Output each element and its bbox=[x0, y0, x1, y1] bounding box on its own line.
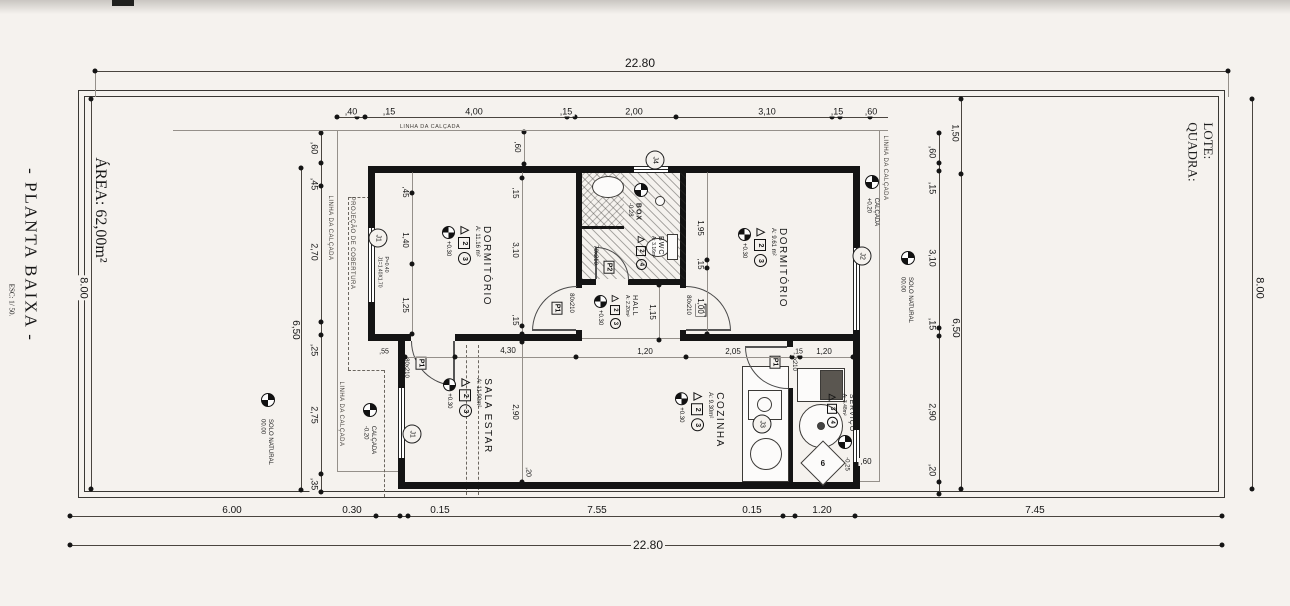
finish-symbols: △ 2 3 bbox=[459, 378, 472, 417]
room-cozinha: COZINHA A: 9.30m² △ 2 3 +0.30 bbox=[675, 392, 725, 448]
floor-plan-sheet: - PLANTA BAIXA - ESC: 1/ 50. ÁREA: 62,00… bbox=[0, 0, 1290, 606]
level-value: +0.30 bbox=[446, 241, 452, 256]
level-box: -0.28 BOX bbox=[626, 203, 641, 221]
wall bbox=[576, 279, 596, 285]
dim-dot bbox=[674, 115, 679, 120]
window-j1-sala bbox=[398, 388, 405, 458]
room-area: A: 9.61 m² bbox=[770, 228, 776, 256]
dim-dot bbox=[319, 131, 324, 136]
dim-dot bbox=[705, 258, 710, 263]
note-linha-calcada-left: LINHA DA CALÇADA bbox=[327, 195, 333, 260]
door-tag-label: P2 bbox=[606, 263, 613, 272]
dim-dot bbox=[937, 480, 942, 485]
wall bbox=[576, 330, 582, 341]
dim-dot bbox=[363, 115, 368, 120]
dim-dot bbox=[1220, 514, 1225, 519]
wall bbox=[853, 173, 860, 248]
level-marker-row: +0.30 bbox=[738, 228, 751, 258]
dim-line bbox=[707, 170, 708, 334]
level-solo-right: 00.00 SOLO NATURAL bbox=[899, 277, 913, 323]
dim-dot bbox=[299, 166, 304, 171]
plan-scale: ESC: 1/ 50. bbox=[8, 282, 15, 318]
dim: ,35 bbox=[310, 476, 319, 493]
circle-symbol: 3 bbox=[458, 252, 471, 265]
roof-projection-line bbox=[348, 370, 384, 371]
triangle-symbol: △ bbox=[828, 394, 837, 401]
room-name: DORMITÓRIO bbox=[481, 226, 492, 306]
scan-shadow bbox=[0, 0, 1290, 14]
dim-line-right-chain bbox=[939, 133, 940, 494]
dim: ,60 bbox=[310, 140, 319, 157]
level-value: +0.30 bbox=[598, 310, 604, 325]
dim-line bbox=[405, 357, 853, 358]
window-tag-j3: J3 bbox=[753, 415, 772, 434]
dim: 0.15 bbox=[428, 506, 451, 516]
door-tag-label: P1 bbox=[554, 304, 561, 313]
dim: 0.30 bbox=[340, 506, 363, 516]
room-area: A: 9.30m² bbox=[707, 392, 713, 418]
dim-line-bottom-chain bbox=[70, 516, 1222, 517]
dim: 1,20 bbox=[635, 348, 655, 356]
dim-recuo: ,60 bbox=[513, 139, 521, 154]
room-name: SALA ESTAR bbox=[482, 378, 493, 453]
dim-dot bbox=[410, 332, 415, 337]
dim-line-right-outer bbox=[961, 99, 962, 489]
level-name: SOLO NATURAL bbox=[267, 419, 274, 465]
square-symbol: 2 bbox=[637, 246, 647, 256]
window-tag-j1: J1 bbox=[369, 229, 388, 248]
wall bbox=[680, 330, 686, 341]
washbasin bbox=[592, 176, 624, 198]
dim-line-left-total bbox=[91, 99, 92, 489]
level-name: CALÇADA bbox=[370, 426, 377, 454]
window-tag-label: J1 bbox=[375, 234, 382, 241]
level-icon-solo-left bbox=[261, 393, 275, 407]
dim-dot bbox=[574, 355, 579, 360]
wall bbox=[398, 482, 860, 489]
dim: 2,90 bbox=[511, 402, 519, 422]
hall-opening-line bbox=[580, 338, 684, 339]
dim: 3,10 bbox=[511, 240, 519, 260]
dim-dot bbox=[937, 492, 942, 497]
quadra-lote-block: QUADRA: LOTE: bbox=[1185, 122, 1215, 181]
dim-dot bbox=[410, 262, 415, 267]
dim-top-total: 22.80 bbox=[623, 57, 657, 69]
level-icon bbox=[442, 226, 455, 239]
dim: 7.45 bbox=[1023, 506, 1046, 516]
room-servico: SERVIÇO A: 3.48m² △ 3 4 bbox=[827, 394, 855, 432]
dim-line-top-chain bbox=[337, 117, 888, 118]
level-marker-row: +0.30 bbox=[594, 295, 607, 325]
dim-dot bbox=[851, 355, 856, 360]
dim: ,15 bbox=[696, 256, 704, 271]
door-tag-label: P1 bbox=[772, 358, 779, 367]
level-icon-calcada-right bbox=[865, 175, 879, 189]
ext-line bbox=[95, 71, 96, 97]
level-value: +0.30 bbox=[679, 407, 685, 422]
window-tag-label: J4 bbox=[652, 156, 659, 163]
dim-dot bbox=[705, 168, 710, 173]
dim: ,15 bbox=[511, 312, 519, 327]
triangle-symbol: △ bbox=[459, 226, 470, 234]
door-tag-bwc: P2 bbox=[604, 261, 615, 274]
dim-dot bbox=[410, 191, 415, 196]
level-name: CALÇADA bbox=[873, 198, 880, 226]
finish-symbols: △ 2 4 bbox=[636, 236, 647, 270]
box-label: BOX bbox=[634, 203, 642, 221]
door-leaf bbox=[745, 346, 787, 348]
dim-dot bbox=[89, 97, 94, 102]
circle-symbol: 3 bbox=[610, 318, 621, 329]
plan-title: - PLANTA BAIXA - bbox=[23, 166, 40, 344]
lote-label: LOTE: bbox=[1201, 122, 1215, 181]
room-sala-estar: SALA ESTAR A: 11.90m² △ 2 3 +0.30 bbox=[443, 378, 493, 453]
room-dormitorio-2: DORMITÓRIO A: 9.61 m² △ 2 3 +0.30 bbox=[738, 228, 788, 308]
square-symbol: 2 bbox=[692, 404, 704, 416]
circle-symbol: 4 bbox=[827, 417, 838, 428]
finish-symbols: △ 3 4 bbox=[827, 394, 838, 428]
note-projecao-cobertura: PROJEÇÃO DE COBERTURA bbox=[349, 197, 355, 290]
room-area: A: 3.48m² bbox=[841, 394, 847, 416]
dim: 0.15 bbox=[740, 506, 763, 516]
dim-line bbox=[522, 170, 523, 334]
level-calcada-left: -0.20 CALÇADA bbox=[362, 426, 376, 454]
door-size: 80x210 bbox=[403, 356, 409, 380]
level-icon bbox=[443, 378, 456, 391]
sidewalk-line bbox=[860, 481, 880, 482]
sink-bowl bbox=[757, 397, 772, 412]
dim-dot bbox=[937, 131, 942, 136]
dim: ,20 bbox=[525, 465, 532, 479]
circle-symbol: 3 bbox=[459, 405, 472, 418]
level-value: -0.25 bbox=[843, 457, 850, 471]
square-symbol: 3 bbox=[828, 404, 838, 414]
circle-symbol: 3 bbox=[754, 254, 767, 267]
dim-right-total: 8.00 bbox=[1254, 275, 1265, 300]
dim-dot bbox=[959, 97, 964, 102]
dim: ,15 bbox=[791, 349, 805, 356]
room-name: HALL bbox=[631, 295, 638, 317]
note-linha-calcada-left2: LINHA DA CALÇADA bbox=[338, 381, 344, 446]
dim-dot bbox=[1250, 97, 1255, 102]
dim-dot bbox=[93, 69, 98, 74]
note-linha-calcada-top: LINHA DA CALÇADA bbox=[400, 124, 460, 130]
dim-line-left-outer bbox=[301, 168, 302, 490]
dim-dot bbox=[520, 324, 525, 329]
dim: 1,95 bbox=[696, 218, 704, 238]
dim-line bbox=[659, 285, 660, 340]
room-area: A: 3.16m² bbox=[650, 236, 656, 258]
triangle-symbol: △ bbox=[637, 236, 646, 243]
dim: ,15 bbox=[558, 108, 575, 117]
stove bbox=[750, 438, 782, 470]
dim-dot bbox=[406, 514, 411, 519]
dim: ,15 bbox=[928, 180, 937, 197]
dim-dot bbox=[684, 355, 689, 360]
level-solo-left: 00.00 SOLO NATURAL bbox=[259, 419, 273, 465]
dim-dot bbox=[520, 340, 525, 345]
dim: 1,40 bbox=[401, 230, 409, 250]
dim-dot bbox=[781, 514, 786, 519]
dim-dot bbox=[520, 480, 525, 485]
dim-dot bbox=[398, 514, 403, 519]
level-name: SOLO NATURAL bbox=[907, 277, 914, 323]
dim-dot bbox=[657, 338, 662, 343]
dim: ,45 bbox=[310, 176, 319, 193]
door-size: 70x210 bbox=[592, 243, 598, 267]
door-leaf bbox=[532, 329, 576, 331]
room-hall: HALL A: 2.20m² △ 2 3 +0.30 bbox=[594, 295, 638, 329]
dim: ,15 bbox=[381, 108, 398, 117]
level-marker-row: +0.30 bbox=[442, 226, 455, 256]
dim-dot bbox=[68, 543, 73, 548]
dim: 1,50 bbox=[951, 122, 960, 144]
room-bwc: BWC A: 3.16m² △ 2 4 bbox=[636, 236, 664, 270]
dim: 1,25 bbox=[401, 295, 409, 315]
dim: ,45 bbox=[401, 184, 409, 199]
dim-dot bbox=[705, 332, 710, 337]
dim-dot bbox=[453, 355, 458, 360]
dim: ,60 bbox=[863, 108, 880, 117]
window-tag-j4: J4 bbox=[646, 151, 665, 170]
dim: ,20 bbox=[928, 462, 937, 479]
dim-dot bbox=[520, 168, 525, 173]
dim-dot bbox=[68, 514, 73, 519]
dim-dot bbox=[959, 172, 964, 177]
quadra-label: QUADRA: bbox=[1185, 122, 1199, 181]
dim: 6,50 bbox=[950, 316, 960, 339]
level-icon-calcada-left bbox=[363, 403, 377, 417]
door-size: 80x210 bbox=[568, 291, 574, 315]
finish-symbols: △ 2 3 bbox=[610, 295, 621, 329]
circle-symbol: 3 bbox=[691, 419, 704, 432]
wall bbox=[455, 334, 578, 341]
dim: 3,10 bbox=[928, 247, 937, 269]
dim: ,25 bbox=[310, 342, 319, 359]
level-marker-row: +0.30 bbox=[443, 378, 456, 408]
dim-dot bbox=[657, 283, 662, 288]
level-marker-row: +0.30 bbox=[675, 392, 688, 422]
square-symbol: 2 bbox=[611, 305, 621, 315]
roof-projection-line bbox=[384, 370, 385, 497]
dim-dot bbox=[319, 472, 324, 477]
dim: 4,30 bbox=[498, 347, 518, 355]
window-tag-label: J3 bbox=[759, 420, 766, 427]
room-name: DORMITÓRIO bbox=[777, 228, 788, 308]
dim-dot bbox=[319, 320, 324, 325]
door-tag-entry: P1 bbox=[416, 357, 427, 370]
dim-bottom-total: 22.80 bbox=[631, 539, 665, 551]
wall bbox=[853, 462, 860, 489]
wall bbox=[368, 166, 634, 173]
scan-mark bbox=[112, 0, 134, 6]
wall bbox=[368, 173, 375, 228]
level-calcada-right: +0.20 CALÇADA bbox=[865, 198, 879, 226]
dim: 1.20 bbox=[810, 506, 833, 516]
level-value: +0.30 bbox=[742, 243, 748, 258]
window-spec-line2: P=0.40 bbox=[383, 257, 389, 288]
dim-dot bbox=[959, 487, 964, 492]
dim-line bbox=[522, 342, 523, 482]
level-value: 00.00 bbox=[259, 419, 266, 465]
triangle-symbol: △ bbox=[611, 295, 620, 302]
dim-dot bbox=[1250, 487, 1255, 492]
sidewalk-line bbox=[173, 130, 888, 131]
triangle-symbol: △ bbox=[692, 392, 703, 400]
dim: 2,90 bbox=[928, 401, 937, 423]
toilet-tank bbox=[667, 234, 678, 260]
dim: ,15 bbox=[511, 185, 519, 200]
dim: 1,15 bbox=[648, 302, 656, 322]
sidewalk-line bbox=[879, 130, 880, 482]
dim-dot bbox=[89, 487, 94, 492]
square-symbol: 2 bbox=[460, 390, 472, 402]
window-tag-label: J2 bbox=[859, 252, 866, 259]
room-name: BWC bbox=[657, 236, 664, 255]
dim-dot bbox=[937, 334, 942, 339]
dim-dot bbox=[403, 355, 408, 360]
dim: 2,75 bbox=[310, 404, 319, 426]
level-value: -0.20 bbox=[362, 426, 369, 454]
level-icon-solo-right bbox=[901, 251, 915, 265]
door-tag-label: P1 bbox=[418, 359, 425, 368]
level-icon bbox=[675, 392, 688, 405]
square-symbol: 2 bbox=[459, 237, 471, 249]
ext-line bbox=[1228, 71, 1229, 97]
note-linha-calcada-right: LINHA DA CALÇADA bbox=[882, 135, 888, 200]
window-spec: J1=1.40X1.70 P=0.40 bbox=[376, 257, 388, 288]
drain-icon bbox=[655, 196, 665, 206]
dim: ,60 bbox=[858, 458, 873, 466]
finish-symbols: △ 2 3 bbox=[754, 228, 767, 267]
dim-dot bbox=[1226, 69, 1231, 74]
dim: ,55 bbox=[377, 349, 391, 356]
dim-line-top-total bbox=[95, 71, 1228, 72]
dim: 2,05 bbox=[723, 348, 743, 356]
room-name: SERVIÇO bbox=[848, 394, 855, 432]
washing-machine-center bbox=[817, 422, 825, 430]
window-tag-j2: J2 bbox=[853, 247, 872, 266]
door-leaf bbox=[686, 329, 730, 331]
inspection-box-number: 6 bbox=[821, 458, 825, 467]
dim-dot bbox=[319, 161, 324, 166]
area-label: ÁREA: 62,00m² bbox=[92, 155, 108, 264]
dim: 1,00 bbox=[696, 296, 704, 316]
dim-dot bbox=[335, 115, 340, 120]
room-dormitorio-1: DORMITÓRIO A: 11.16 m² △ 2 3 +0.30 bbox=[442, 226, 492, 306]
wall bbox=[368, 334, 411, 341]
dim-left-total: 8.00 bbox=[78, 275, 89, 300]
level-value: 00.00 bbox=[899, 277, 906, 323]
dim-dot bbox=[319, 333, 324, 338]
door-size: 80x210 bbox=[685, 293, 691, 317]
level-icon-servico bbox=[838, 435, 852, 449]
dim: 1,20 bbox=[814, 348, 834, 356]
dim-dot bbox=[1220, 543, 1225, 548]
finish-symbols: △ 2 3 bbox=[691, 392, 704, 431]
room-name: COZINHA bbox=[714, 392, 725, 448]
dim: 2,00 bbox=[623, 108, 645, 117]
circle-symbol: 4 bbox=[636, 259, 647, 270]
window-spec-line1: J1=1.40X1.70 bbox=[376, 257, 382, 288]
dim-dot bbox=[853, 514, 858, 519]
dim: 3,10 bbox=[756, 108, 778, 117]
level-icon bbox=[738, 228, 751, 241]
dim-dot bbox=[937, 161, 942, 166]
sidewalk-line bbox=[337, 471, 400, 472]
dim: ,15 bbox=[928, 316, 937, 333]
dim: 4,00 bbox=[463, 108, 485, 117]
window-tag-j1-sala: J1 bbox=[403, 425, 422, 444]
dim-dot bbox=[937, 169, 942, 174]
dim: ,15 bbox=[829, 108, 846, 117]
wall bbox=[668, 166, 860, 173]
dim-dot bbox=[299, 488, 304, 493]
square-symbol: 2 bbox=[755, 239, 767, 251]
door-tag-dorm1: P1 bbox=[552, 302, 563, 315]
dim: 2,70 bbox=[310, 241, 319, 263]
level-icon-box bbox=[634, 183, 648, 197]
dim: 6,50 bbox=[290, 318, 300, 341]
triangle-symbol: △ bbox=[755, 228, 766, 236]
room-area: A: 2.20m² bbox=[624, 295, 630, 317]
finish-symbols: △ 2 3 bbox=[458, 226, 471, 265]
triangle-symbol: △ bbox=[460, 378, 471, 386]
dim: 7.55 bbox=[585, 506, 608, 516]
level-value: +0.20 bbox=[865, 198, 872, 226]
dim: ,60 bbox=[928, 144, 937, 161]
level-value: -0.28 bbox=[626, 203, 633, 221]
dim-dot bbox=[374, 514, 379, 519]
dim-dot bbox=[520, 176, 525, 181]
level-value: +0.30 bbox=[447, 393, 453, 408]
dim: ,40 bbox=[343, 108, 360, 117]
dim-dot bbox=[520, 332, 525, 337]
dim-dot bbox=[793, 514, 798, 519]
window-tag-label: J1 bbox=[409, 430, 416, 437]
room-area: A: 11.90m² bbox=[475, 378, 481, 407]
room-area: A: 11.16 m² bbox=[474, 226, 480, 257]
dim-dot bbox=[410, 168, 415, 173]
dim-dot bbox=[705, 266, 710, 271]
wall bbox=[684, 334, 860, 341]
level-servico: -0.25 bbox=[843, 457, 850, 471]
level-icon bbox=[594, 295, 607, 308]
dim: 6.00 bbox=[220, 506, 243, 516]
